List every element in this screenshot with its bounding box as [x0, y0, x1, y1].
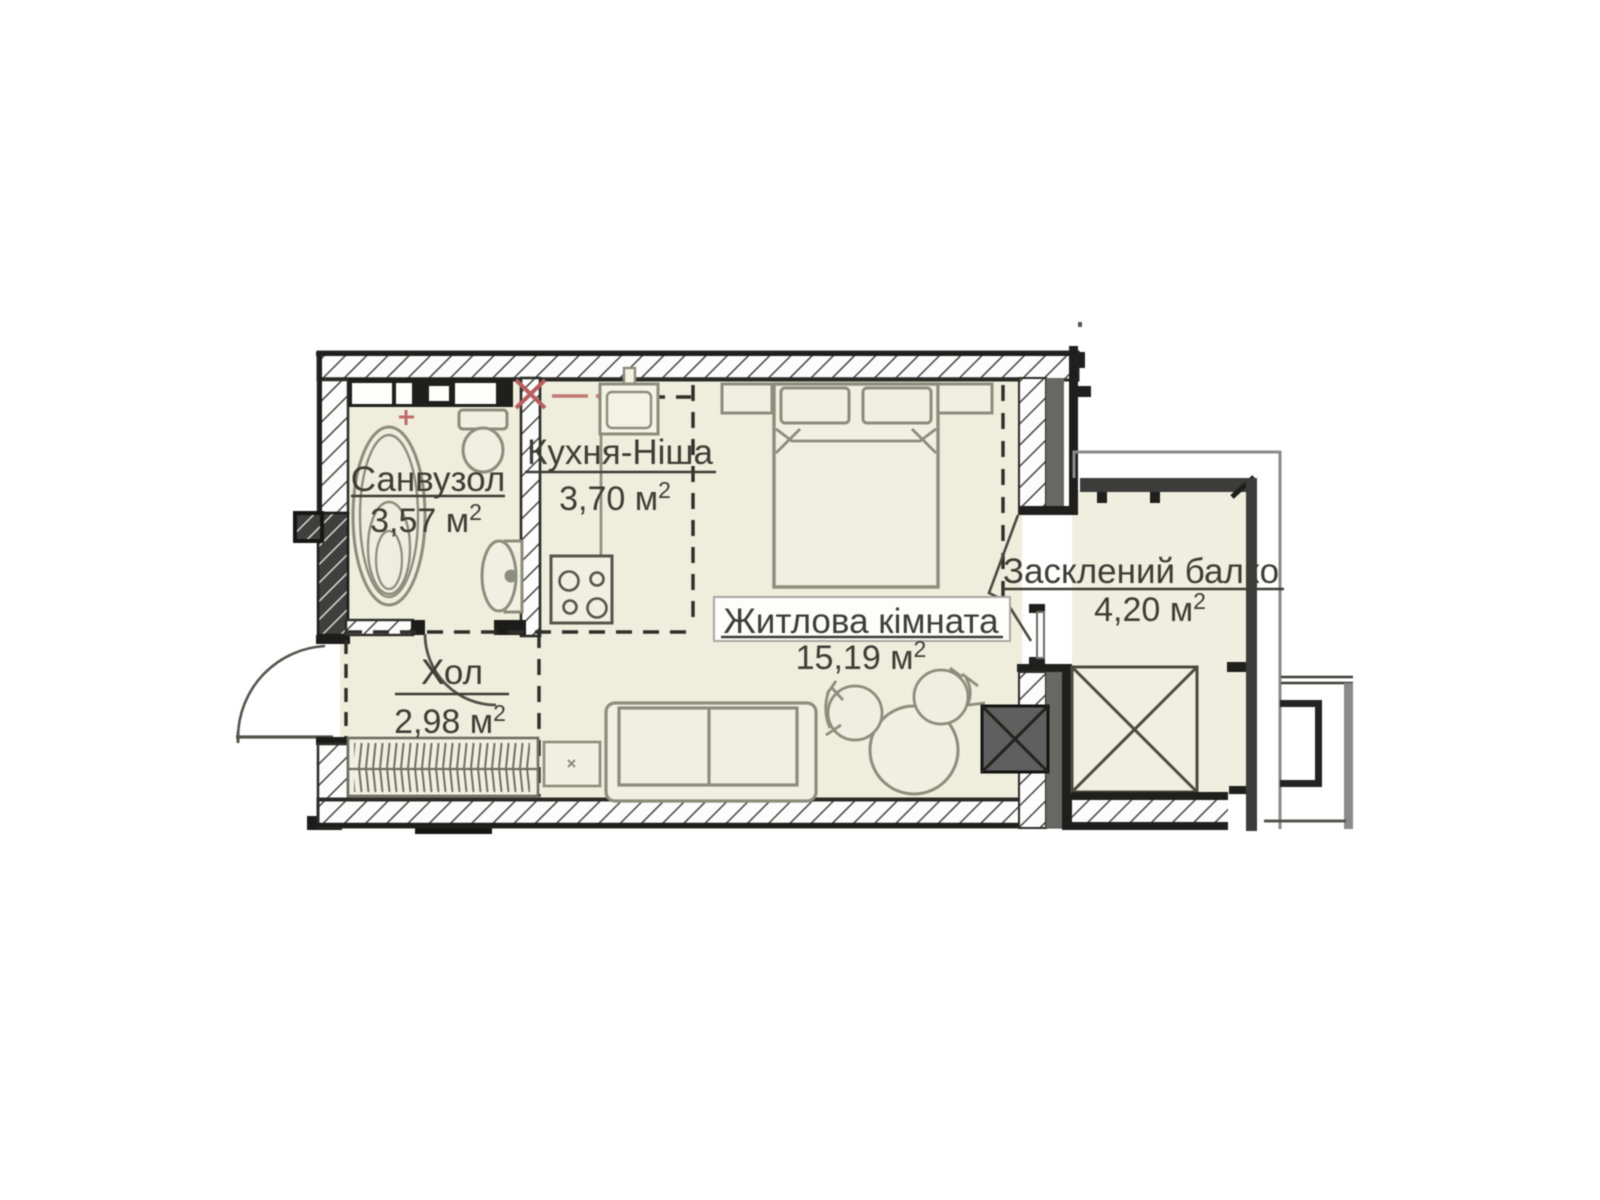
svg-text:Житлова кімната: Житлова кімната: [723, 602, 999, 641]
svg-text:Санвузол: Санвузол: [351, 460, 506, 499]
svg-text:3,70 м2: 3,70 м2: [559, 477, 671, 518]
svg-text:Хол: Хол: [421, 653, 483, 692]
svg-text:4,20 м2: 4,20 м2: [1094, 588, 1206, 629]
svg-text:Кухня-Ніша: Кухня-Ніша: [527, 433, 713, 472]
svg-text:15,19 м2: 15,19 м2: [796, 636, 927, 677]
svg-text:2,98 м2: 2,98 м2: [394, 700, 506, 741]
svg-text:Засклений балко: Засклений балко: [1003, 552, 1279, 591]
svg-text:3,57 м2: 3,57 м2: [370, 499, 482, 540]
